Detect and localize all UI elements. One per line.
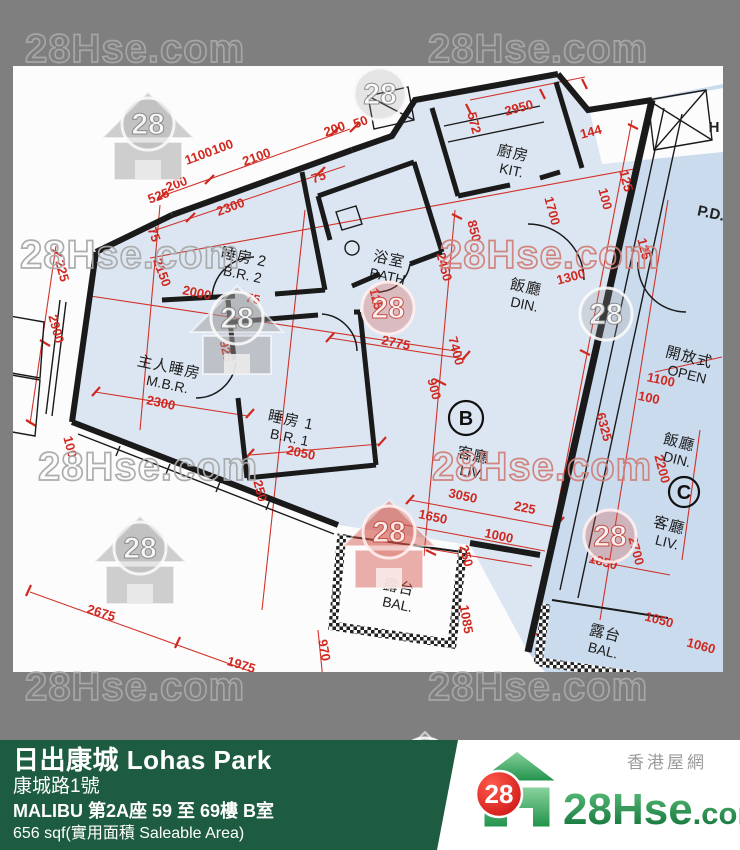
watermark-badge: 28 xyxy=(363,78,396,111)
watermark-text: 28Hse.com xyxy=(20,233,240,277)
unit-letter: B xyxy=(459,408,473,430)
property-info-banner: 日出康城 Lohas Park 康城路1號 MALIBU 第2A座 59 至 6… xyxy=(0,740,460,850)
watermark-logo: 28 xyxy=(580,288,632,340)
watermark-text: 28Hse.com xyxy=(25,665,245,709)
plan-annotation: H xyxy=(709,119,720,136)
logo-house-icon: 28 xyxy=(475,750,559,828)
estate-name: 日出康城 Lohas Park xyxy=(13,745,460,775)
watermark-badge: 28 xyxy=(131,108,164,141)
unit-letter: C xyxy=(677,482,691,504)
site-logo[interactable]: 28 香港屋網 28Hse.com xyxy=(455,742,740,850)
saleable-area: 656 sqf(實用面積 Saleable Area) xyxy=(13,823,460,845)
watermark-text: 28Hse.com xyxy=(432,445,652,489)
estate-address: 康城路1號 xyxy=(13,775,460,799)
watermark-badge: 28 xyxy=(371,292,404,325)
watermark-badge: 28 xyxy=(220,302,253,335)
watermark-text: 28Hse.com xyxy=(38,445,258,489)
watermark-badge: 28 xyxy=(593,520,626,553)
logo-badge-text: 28 xyxy=(485,779,514,809)
watermark-badge: 28 xyxy=(589,298,622,331)
watermark-badge: 28 xyxy=(123,532,156,565)
unit-description: MALIBU 第2A座 59 至 69樓 B室 xyxy=(13,799,460,823)
watermark-logo: 28 xyxy=(354,68,406,120)
floorplan-image: 2002100200502300751100100525752150200075… xyxy=(0,0,740,850)
watermark-text: 28Hse.com xyxy=(25,27,245,71)
watermark-logo: 28 xyxy=(584,510,636,562)
watermark-badge: 28 xyxy=(372,516,405,549)
watermark-logo: 28 xyxy=(362,282,414,334)
logo-brand: 28Hse.com xyxy=(563,785,740,834)
logo-tagline: 香港屋網 xyxy=(627,753,707,772)
screenshot-stage: 2002100200502300751100100525752150200075… xyxy=(0,0,740,850)
watermark-text: 28Hse.com xyxy=(428,665,648,709)
watermark-text: 28Hse.com xyxy=(428,27,648,71)
watermark-text: 28Hse.com xyxy=(440,233,660,277)
